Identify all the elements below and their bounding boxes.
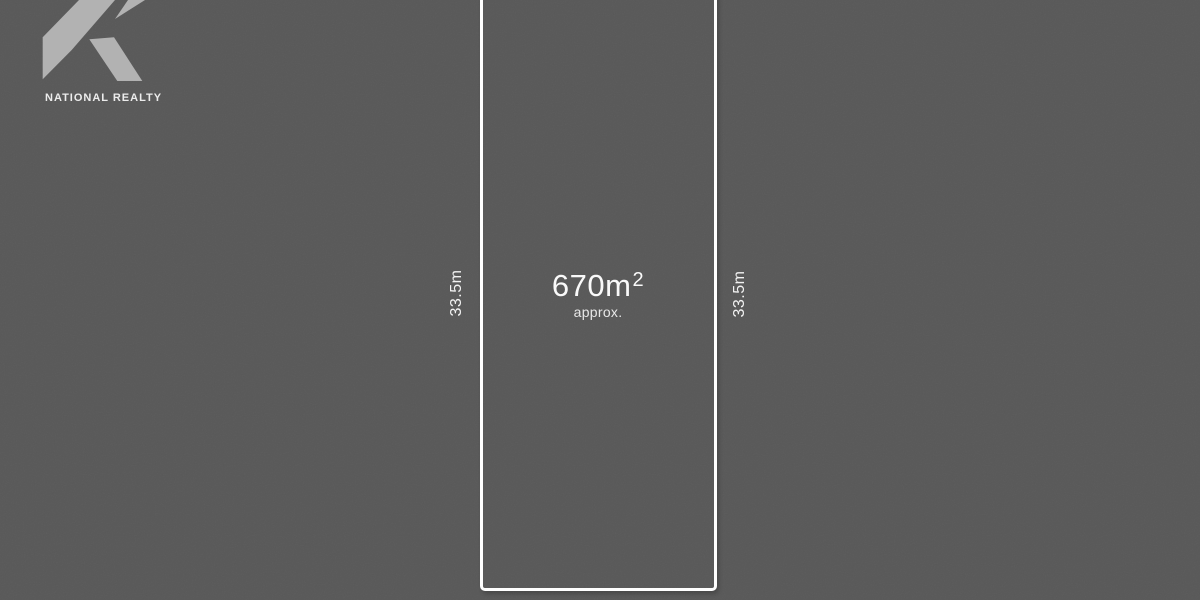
area-number: 670m <box>552 268 632 303</box>
dimension-label-right: 33.5m <box>731 271 749 318</box>
lot-area-value: 670m2 <box>552 270 644 301</box>
dimension-label-left: 33.5m <box>448 270 466 317</box>
brand-name: NATIONAL REALTY <box>45 92 170 104</box>
lot-area-label: 670m2 approx. <box>552 270 644 320</box>
lot-plan-canvas: NATIONAL REALTY 670m2 approx. 33.5m 33.5… <box>0 0 1200 600</box>
lot-area-approx: approx. <box>552 304 644 320</box>
brand-logo: NATIONAL REALTY <box>40 0 170 104</box>
area-superscript: 2 <box>632 269 644 291</box>
realty-r-monogram-icon <box>40 0 160 90</box>
